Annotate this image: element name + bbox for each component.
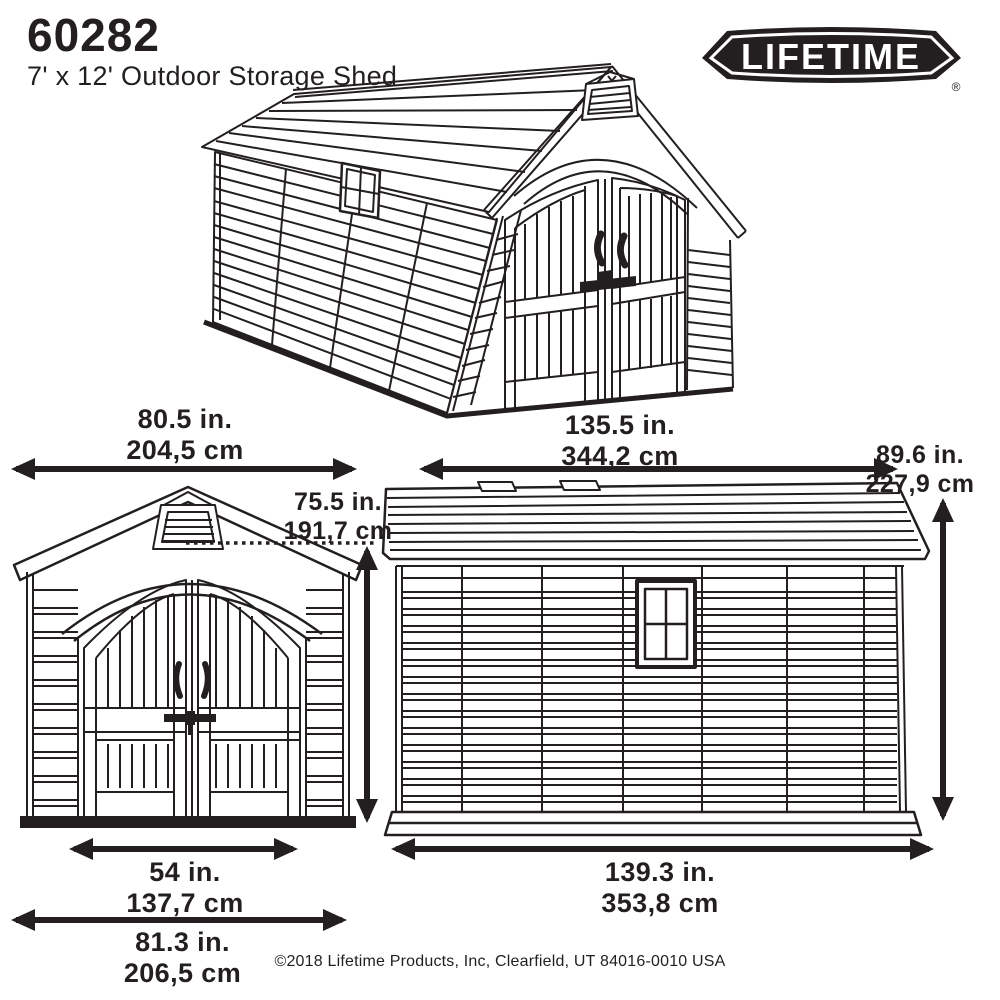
side-length-inches: 135.5 in. bbox=[475, 410, 765, 441]
shed-side-view bbox=[383, 481, 929, 835]
side-length-label: 135.5 in. 344,2 cm bbox=[475, 410, 765, 472]
side-height-label: 89.6 in. 227,9 cm bbox=[845, 441, 995, 498]
shed-3d-view bbox=[202, 64, 746, 416]
shed-3d-door-latch bbox=[580, 270, 636, 292]
side-overall-length-cm: 353,8 cm bbox=[515, 888, 805, 919]
side-length-cm: 344,2 cm bbox=[475, 441, 765, 472]
side-height-cm: 227,9 cm bbox=[845, 470, 995, 499]
front-height-cm: 191,7 cm bbox=[258, 517, 418, 546]
door-width-cm: 137,7 cm bbox=[60, 888, 310, 919]
shed-3d-side-window bbox=[340, 163, 380, 218]
product-dimension-sheet: 60282 7' x 12' Outdoor Storage Shed LIFE… bbox=[0, 0, 1000, 1000]
diagram-canvas bbox=[0, 0, 1000, 1000]
door-width-label: 54 in. 137,7 cm bbox=[60, 857, 310, 919]
side-overall-length-label: 139.3 in. 353,8 cm bbox=[515, 857, 805, 919]
front-height-inches: 75.5 in. bbox=[258, 488, 418, 517]
side-base bbox=[385, 812, 921, 835]
side-overall-length-inches: 139.3 in. bbox=[515, 857, 805, 888]
front-width-cm: 204,5 cm bbox=[40, 435, 330, 466]
copyright-line: ©2018 Lifetime Products, Inc, Clearfield… bbox=[0, 953, 1000, 971]
shed-3d-doors bbox=[505, 178, 685, 409]
front-width-inches: 80.5 in. bbox=[40, 404, 330, 435]
side-window bbox=[637, 581, 695, 667]
side-wall bbox=[396, 566, 906, 812]
front-base bbox=[20, 816, 356, 828]
door-width-inches: 54 in. bbox=[60, 857, 310, 888]
front-height-label: 75.5 in. 191,7 cm bbox=[258, 488, 418, 545]
side-height-inches: 89.6 in. bbox=[845, 441, 995, 470]
front-width-label: 80.5 in. 204,5 cm bbox=[40, 404, 330, 466]
